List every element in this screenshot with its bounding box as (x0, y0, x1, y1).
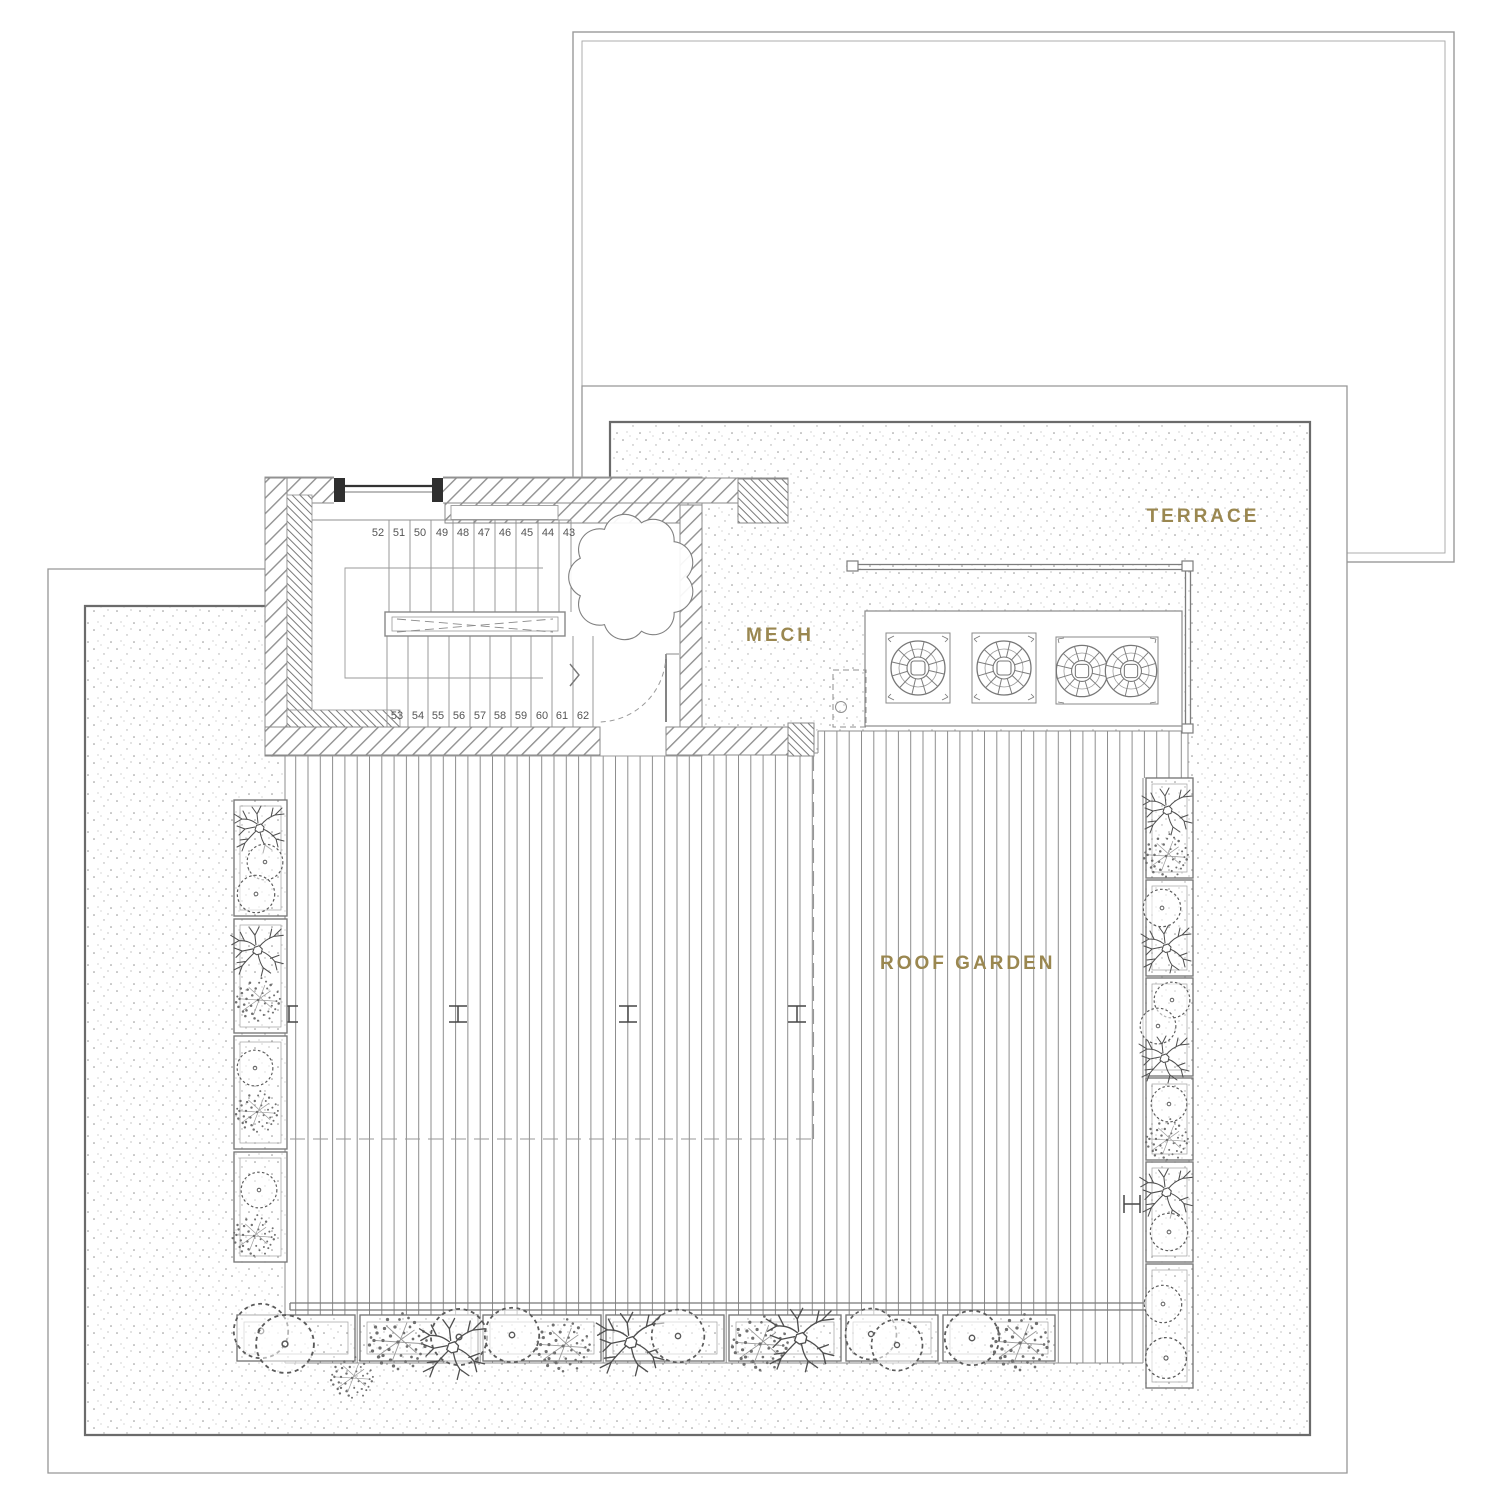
roof-garden-label: ROOF GARDEN (880, 953, 1050, 975)
stair-number: 50 (414, 527, 426, 539)
stair-number: 58 (494, 710, 506, 722)
stair-number: 59 (515, 710, 527, 722)
stair-number: 51 (393, 527, 405, 539)
stair-number: 53 (391, 710, 403, 722)
mech-label: MECH (730, 625, 830, 647)
stair-number: 48 (457, 527, 469, 539)
stair-number: 62 (577, 710, 589, 722)
stair-number: 52 (372, 527, 384, 539)
terrace-label: TERRACE (1128, 506, 1278, 528)
stair-number: 56 (453, 710, 465, 722)
stair-number: 49 (436, 527, 448, 539)
stair-number: 57 (474, 710, 486, 722)
stair-number: 47 (478, 527, 490, 539)
deck-area (280, 731, 1188, 1363)
handrail (385, 612, 565, 636)
floor-plan-drawing (0, 0, 1500, 1500)
stair-number: 60 (536, 710, 548, 722)
double-fan-unit (1056, 637, 1158, 704)
stair-number: 44 (542, 527, 554, 539)
roof-plan-canvas: TERRACE MECH ROOF GARDEN 52 51 50 49 48 … (0, 0, 1500, 1500)
double-door (334, 475, 443, 505)
stair-number: 55 (432, 710, 444, 722)
stair-number: 43 (563, 527, 575, 539)
stair-number: 46 (499, 527, 511, 539)
stair-number: 61 (556, 710, 568, 722)
stair-number: 45 (521, 527, 533, 539)
mech-pad (833, 611, 1182, 727)
stair-number: 54 (412, 710, 424, 722)
